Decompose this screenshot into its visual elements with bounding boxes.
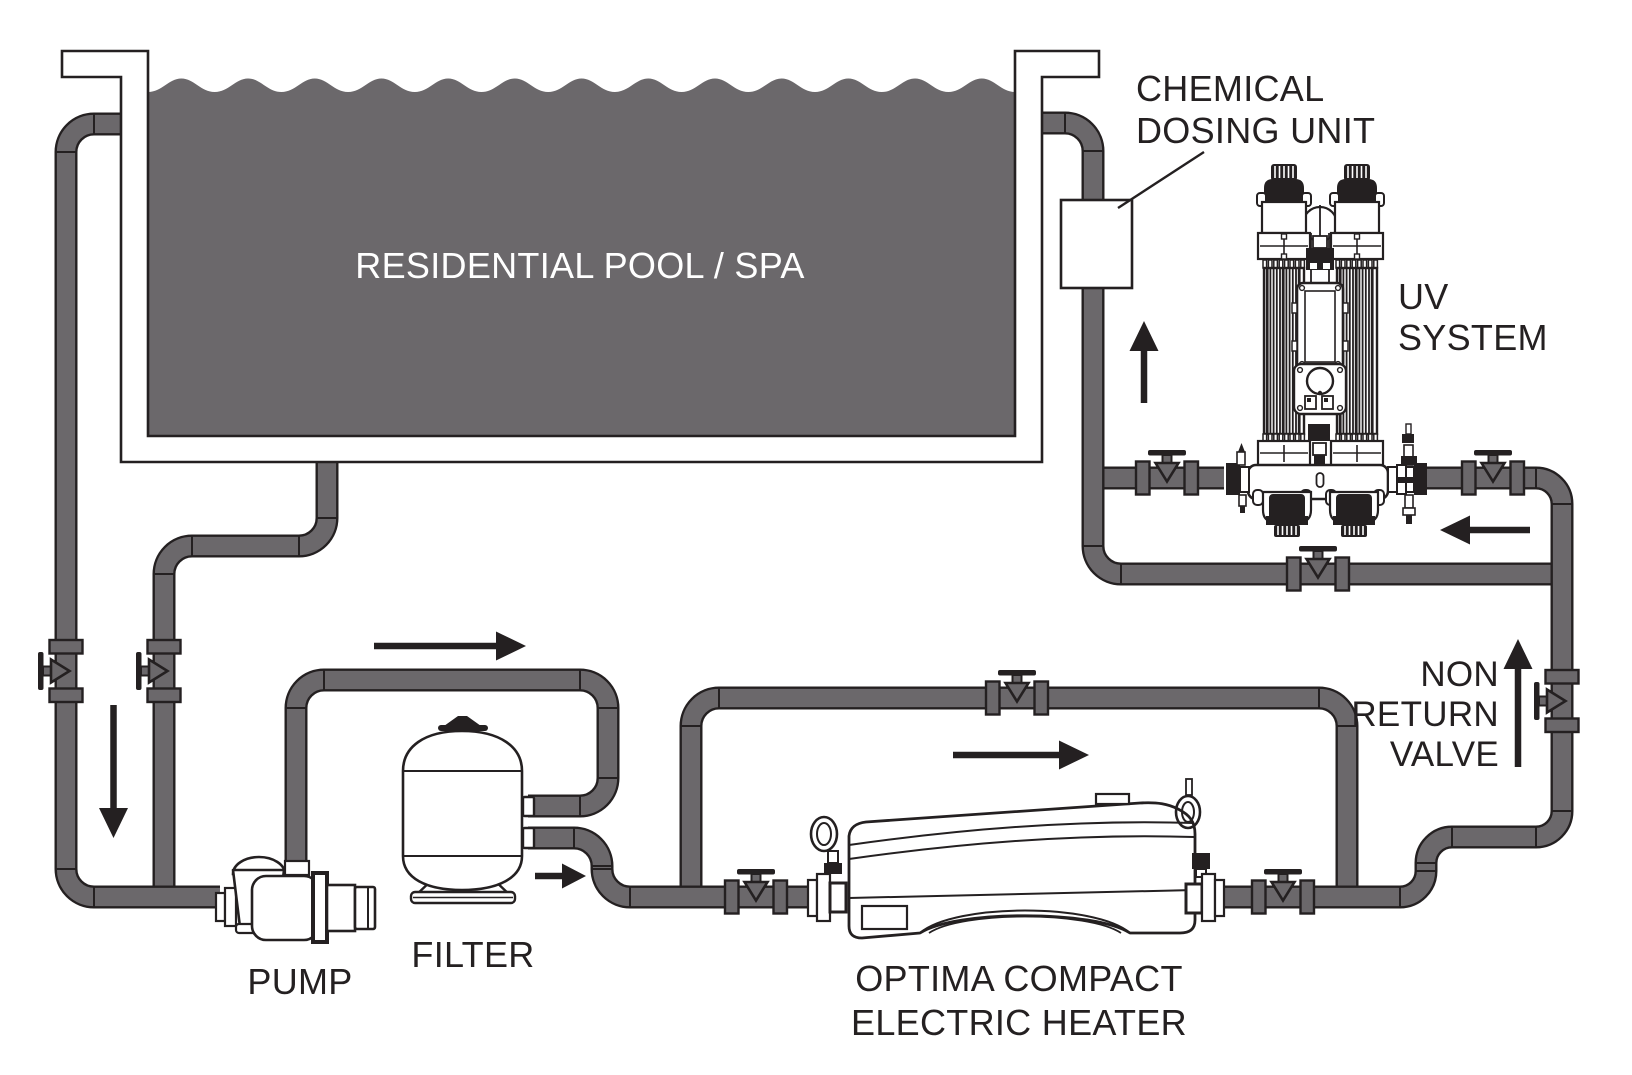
svg-text:ELECTRIC HEATER: ELECTRIC HEATER [851,1002,1187,1043]
svg-text:DOSING UNIT: DOSING UNIT [1136,110,1375,151]
svg-text:OPTIMA COMPACT: OPTIMA COMPACT [855,958,1183,999]
svg-text:UV: UV [1398,276,1449,317]
svg-text:RETURN: RETURN [1351,695,1499,734]
svg-text:NON: NON [1420,655,1499,694]
svg-text:SYSTEM: SYSTEM [1398,317,1548,358]
svg-text:PUMP: PUMP [247,961,352,1002]
svg-text:VALVE: VALVE [1390,735,1499,774]
svg-text:FILTER: FILTER [411,934,534,975]
svg-text:RESIDENTIAL POOL / SPA: RESIDENTIAL POOL / SPA [355,245,804,286]
svg-text:CHEMICAL: CHEMICAL [1136,68,1324,109]
